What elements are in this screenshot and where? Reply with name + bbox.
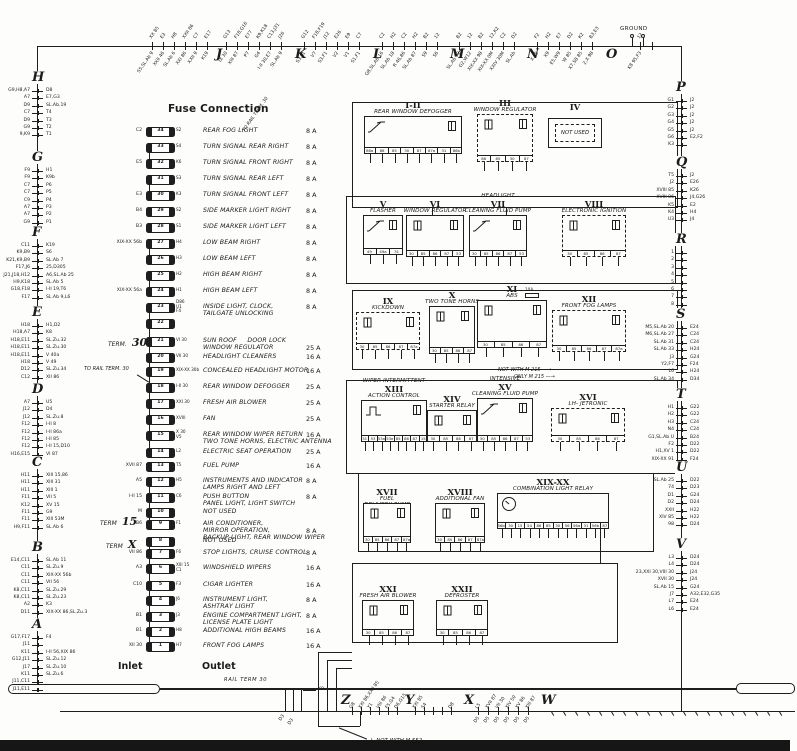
fuse-number: 33 xyxy=(152,144,169,152)
relay-pin-row: 3085868787a xyxy=(363,536,411,543)
fuse-number: 29 xyxy=(152,208,169,216)
fuse-left-tag: C2 xyxy=(112,128,142,133)
top-rail-tick xyxy=(304,42,305,50)
fuse-number: 16 xyxy=(152,416,169,424)
fuse-label: PUSH BUTTON xyxy=(203,493,249,500)
top-rail-label-above: G13 xyxy=(223,29,232,40)
fuse-left-tag: XVII 87 xyxy=(112,463,142,468)
fuse-right-tag: F6 xyxy=(176,549,181,554)
fuse-label: NOT USED xyxy=(203,508,237,515)
relay-pin-stub xyxy=(382,442,383,451)
fuse-amps: 16 A xyxy=(306,581,321,589)
rail-tick-pin xyxy=(681,356,683,360)
fuse-element: 34 xyxy=(146,127,175,137)
rail-tick-right-label: C24 xyxy=(690,332,699,337)
rail-tick-pin xyxy=(681,428,683,432)
fuse-amps: 8 A xyxy=(306,303,316,311)
fuse-label: HIGH BEAM RIGHT xyxy=(203,271,262,278)
rail-tick-right-label: C24 xyxy=(690,427,699,432)
relay-pin-stub xyxy=(375,350,376,359)
rail-tick-right-label: T4 xyxy=(46,110,52,115)
fuse-right-tag: F4 xyxy=(176,308,181,313)
right-rail-letter: U xyxy=(675,461,688,474)
fuse-number: 4 xyxy=(152,597,169,605)
rail-tick-pin xyxy=(681,196,683,200)
rail-tick-pin xyxy=(37,504,39,508)
relay-inner-component xyxy=(519,403,527,413)
fuse-label: INSIDE LIGHT, CLOCK, xyxy=(203,303,273,310)
relay-inner-component xyxy=(513,220,521,230)
relay-pin-stub xyxy=(398,442,399,451)
fuse-end-cap xyxy=(169,538,174,546)
fuse-left-tag: B4 xyxy=(112,208,142,213)
relay-pin-stub xyxy=(460,543,461,552)
rail-tick-pin xyxy=(681,571,683,575)
top-rail-label-below: K19 xyxy=(201,51,210,61)
rail-tick-right-label: P1 xyxy=(46,220,52,225)
relay-pin-stub xyxy=(444,154,445,163)
rail-tick-right-label: G9 xyxy=(46,510,52,515)
relay-pin-stub xyxy=(486,257,487,266)
relay-pin-stub xyxy=(369,636,370,645)
right-rail-letter: R xyxy=(675,233,688,246)
fuse-left-tag: M xyxy=(112,509,142,514)
relay-pin-stub xyxy=(443,636,444,645)
fuse-end-cap xyxy=(169,320,174,328)
outlet-label: Outlet xyxy=(202,661,236,672)
relay-inner-component xyxy=(612,220,620,230)
relay-pin-stub xyxy=(475,257,476,266)
relay-pin-stub xyxy=(390,442,391,451)
rail-tick-left-label: Y2,F7 xyxy=(619,362,674,367)
relay-pin-stub xyxy=(494,442,495,451)
fuse-right-tag: C1 xyxy=(176,567,182,572)
fuse-right-tag: VI 30 xyxy=(176,337,187,342)
rail-tick-left-label: H16,E15 xyxy=(0,452,30,457)
rail-tick-right-label: J2 xyxy=(690,98,694,103)
relay-pin-stub xyxy=(469,636,470,645)
relay-pin-stub xyxy=(458,442,459,451)
rail-tick-right-label: P2 xyxy=(46,212,52,217)
fuse-element: 27 xyxy=(146,239,175,249)
rail-tick-pin xyxy=(37,438,39,442)
fuse-amps: 8 A xyxy=(306,493,316,501)
top-rail-tick xyxy=(337,42,338,50)
fuse-left-tag: XII 30 xyxy=(112,643,142,648)
rail-tick-left-label: J17 xyxy=(0,665,30,670)
relay-inner-wire xyxy=(474,508,475,518)
bottom-rail-letter: X xyxy=(463,694,475,707)
rail-tick-pin xyxy=(681,251,683,255)
relay-pin-row: 3085868753 xyxy=(406,250,464,257)
top-rail-tick xyxy=(174,42,175,50)
rail-tick-left-label: L7 xyxy=(619,599,674,604)
wire-d3-1 xyxy=(285,688,286,711)
fuse-number: 10 xyxy=(152,509,169,517)
rail-tick-pin xyxy=(681,509,683,513)
top-rail-label-above: E3 xyxy=(160,32,167,40)
relay-inner-wire xyxy=(615,220,616,230)
relay-pin-stub xyxy=(447,257,448,266)
rail-tick-left-label: F11 xyxy=(0,510,30,515)
rail-tick-left-label: H18 xyxy=(0,323,30,328)
top-rail-label-below: S3,F1 xyxy=(318,51,329,64)
rail-tick-left-label: XXII xyxy=(619,508,674,513)
rail-tick-pin xyxy=(681,406,683,410)
relay-pin-stub xyxy=(530,529,531,538)
rail-tick-left-label: XVII 30 xyxy=(619,577,674,582)
relay-pin-stub xyxy=(498,257,499,266)
rail-tick-left-label: D1 xyxy=(619,493,674,498)
rail-tick-right-label: T3 xyxy=(46,118,52,123)
relay-title: IV xyxy=(548,103,602,113)
rail-tick-left-label: 3 xyxy=(619,265,674,270)
top-rail-tick xyxy=(426,42,427,50)
relay-pin-stub xyxy=(520,529,521,538)
relay-pin-row: 30858687 xyxy=(551,435,625,442)
rail-tick-pin xyxy=(681,413,683,417)
wire xyxy=(600,529,601,563)
relay-inner-wire xyxy=(453,220,454,230)
rail-tick-left-label: SL.Ab 25 xyxy=(619,478,674,483)
rail-tick-pin xyxy=(37,489,39,493)
relay-inner-component xyxy=(450,220,458,230)
rail-tick-left-label: E14,C11 xyxy=(0,558,30,563)
fuse-element: 33 xyxy=(146,143,175,153)
fuse-end-cap xyxy=(169,449,174,457)
top-rail-tick xyxy=(537,42,538,50)
top-rail-label-above: K2 xyxy=(578,32,586,40)
rail-tick-pin xyxy=(37,673,39,677)
rail-tick-pin xyxy=(681,129,683,133)
relay-pin-stub xyxy=(521,348,522,357)
rail-tick-left-label: XVIII 86 xyxy=(619,195,674,200)
top-rail-label-below: G4 xyxy=(254,51,262,59)
top-rail-label-above: J26 xyxy=(278,31,286,40)
rail-tick-pin xyxy=(681,578,683,582)
rail-tick-left-label: G6 xyxy=(619,135,674,140)
rail-tick-pin xyxy=(37,331,39,335)
rail-tick-pin xyxy=(37,251,39,255)
rail-tick-left-label: K21,K9,B9 xyxy=(0,258,30,263)
rail-tick-left-label: F9 xyxy=(0,175,30,180)
fuse-label: LICENSE PLATE LIGHT xyxy=(203,619,273,626)
top-rail-label-above: C7 xyxy=(356,32,364,40)
rail-tick-pin xyxy=(681,288,683,292)
rail-tick-right-label: XIII 1 xyxy=(46,488,58,493)
rail-tick-left-label: C7 xyxy=(0,190,30,195)
fuse-amps: 16 A xyxy=(306,564,321,572)
right-rail-letter: P xyxy=(675,81,687,94)
fuse-number: 19 xyxy=(152,368,169,376)
rail-tick-right-label: I-II 86a xyxy=(46,430,62,435)
rail-tick-pin xyxy=(681,121,683,125)
rail-tick-pin xyxy=(681,99,683,103)
top-rail-tick xyxy=(259,42,260,50)
rail-tick-pin xyxy=(37,199,39,203)
fuse-end-cap xyxy=(169,494,174,502)
rail-tick-left-label: K11 xyxy=(0,650,30,655)
top-rail-label-above: J12 xyxy=(323,31,331,40)
rail-tick-left-label: M5,SL.Ab 20 xyxy=(619,325,674,330)
top-rail-label-above: E17 xyxy=(204,30,213,40)
left-rail-letter: F xyxy=(31,226,42,239)
fuse-amps: 8 A xyxy=(306,159,316,167)
relay-inner-component xyxy=(406,317,414,327)
fuse-row: 23D86U1F4INSIDE LIGHT, CLOCK,TAILGATE UN… xyxy=(0,302,340,316)
rail-tick-right-label: VII 56 xyxy=(46,580,59,585)
relay-inner-wire xyxy=(477,605,478,615)
rail-tick-right-label: D4 xyxy=(46,407,52,412)
rail-tick-left-label: J11 xyxy=(0,642,30,647)
rail-tick-right-label: D22 xyxy=(690,449,699,454)
relay-not-used-label: NOT USED xyxy=(556,130,594,136)
ground-wire-left xyxy=(632,38,633,46)
rail-tick-pin xyxy=(37,133,39,137)
top-rail-tick xyxy=(652,42,653,50)
relay-name: LH- JETRONIC xyxy=(535,401,641,407)
fuse-right-tag: XVIII xyxy=(176,415,185,420)
rail-tick-left-label: D9 xyxy=(0,103,30,108)
fuse-end-cap xyxy=(169,288,174,296)
bottom-rail-letter: W xyxy=(540,694,557,707)
rail-tick-left-label: L3 xyxy=(619,555,674,560)
top-rail-label-below: P7 xyxy=(244,51,251,59)
relay-pin-stub xyxy=(423,442,424,451)
relay-name: REAR WINDOW DEFOGGER xyxy=(348,109,478,115)
rail-tick-left-label: T5 xyxy=(619,173,674,178)
top-rail-label-below: S9 xyxy=(422,51,429,59)
rail-tick-left-label: F17,J6 xyxy=(0,265,30,270)
rail-tick-right-label: U5 xyxy=(46,400,52,405)
fuse-end-cap xyxy=(169,463,174,471)
left-rail-letter: H xyxy=(31,71,45,84)
rail-tick-right-label: SL.Zu.29 xyxy=(46,588,66,593)
rail-tick-right-label: D24 xyxy=(690,500,699,505)
rail-tick-pin xyxy=(681,189,683,193)
rail-tick-right-label: E24 xyxy=(690,607,699,612)
rail-tick-left-label: H9,F11 xyxy=(0,525,30,530)
rail-tick-pin xyxy=(681,258,683,262)
rail-tick-pin xyxy=(681,494,683,498)
relay-pin-stub xyxy=(412,257,413,266)
top-rail-label-below: S1,F1 xyxy=(351,51,362,64)
fuse-label: INSTRUMENTS AND INDICATOR xyxy=(203,477,303,484)
rail-tick-left-label: H18,E11 xyxy=(0,353,30,358)
fuse-element: 11 xyxy=(146,493,175,503)
relay-pin-stub xyxy=(450,543,451,552)
rail-tick-right-label: SL.Ab 9,L6 xyxy=(46,295,70,300)
rail-tick-pin xyxy=(37,603,39,607)
fuse-label: TURN SIGNAL REAR RIGHT xyxy=(203,143,288,150)
rail-tick-left-label: C11 xyxy=(0,573,30,578)
rail-tick-left-label: A7 xyxy=(0,95,30,100)
rail-tick-pin xyxy=(681,326,683,330)
relay-pin-row: 3085868753 xyxy=(469,250,527,257)
rail-tick-pin xyxy=(681,486,683,490)
fuse-end-cap xyxy=(169,613,174,621)
fuse-label: TURN SIGNAL REAR LEFT xyxy=(203,175,284,182)
fuse-number: 18 xyxy=(152,384,169,392)
rail-tick-pin xyxy=(37,281,39,285)
rail-tick-right-label: V 49 xyxy=(46,360,56,365)
top-rail-label-below: K8 95,F3 xyxy=(627,51,643,70)
rail-tick-left-label: J21,J18,H12 xyxy=(0,273,30,278)
relay-pin-stub xyxy=(510,257,511,266)
fuse-right-tag: F1 xyxy=(176,520,181,525)
top-rail-tick xyxy=(404,42,405,50)
fuse-right-tag: K6 xyxy=(176,159,181,164)
rail-tick-pin xyxy=(37,596,39,600)
ground-wire-right xyxy=(643,38,644,46)
rail-tick-pin xyxy=(37,481,39,485)
relay-inner-wire xyxy=(409,317,410,327)
right-rail-letter: S xyxy=(675,308,686,321)
fuse-end-cap xyxy=(169,192,174,200)
fuse-left-tag: XIX-XX 56b xyxy=(112,240,142,245)
fuse-label: WINDSHIELD WIPERS xyxy=(203,564,271,571)
rail-tick-right-label: I-II 19,T6 xyxy=(46,287,66,292)
fuse-label: SIDE MARKER LIGHT RIGHT xyxy=(203,207,291,214)
relay-pin-stub xyxy=(516,442,517,451)
fuse-left-tag: A3 xyxy=(112,565,142,570)
relay-inner-wire xyxy=(403,605,404,615)
rail-tick-right-label: T1 xyxy=(46,132,52,137)
rail-tick-pin xyxy=(681,114,683,118)
top-rail-tick xyxy=(415,42,416,50)
fuse-left-tag: E3 xyxy=(112,192,142,197)
wire xyxy=(336,668,352,669)
relay-inner-component xyxy=(389,220,397,230)
rail-tick-left-label: 23,XXI 30,VIII 30 xyxy=(619,570,674,575)
rail-tick-left-label: SL.Ab 33 xyxy=(619,347,674,352)
rail-tick-pin xyxy=(681,143,683,147)
fuse-number: 13 xyxy=(152,463,169,471)
rail-tick-pin xyxy=(681,218,683,222)
rail-tick-pin xyxy=(37,680,39,684)
fuse-left-tag: B3 xyxy=(112,224,142,229)
rail-tick-right-label: G22 xyxy=(690,405,699,410)
rail-tick-left-label: 74 xyxy=(619,485,674,490)
fuse-left-tag: I-II 15 xyxy=(112,494,142,499)
relay-pin-stub xyxy=(548,529,549,538)
fuse-right-tag: H1 xyxy=(176,287,182,292)
rail-tick-pin xyxy=(37,176,39,180)
relay-pre-name: INTENSIVE xyxy=(463,376,547,382)
rail-tick-left-label: C9 xyxy=(0,198,30,203)
rail-tick-pin xyxy=(37,651,39,655)
top-rail-tick xyxy=(185,42,186,50)
rail-tick-right-label: I-II 8 xyxy=(46,422,56,427)
rail-tick-right-label: T2 xyxy=(46,125,52,130)
fuse-label: TAILGATE UNLOCKING xyxy=(203,310,274,317)
fuse-end-cap xyxy=(169,432,174,440)
fuse-label: FRONT FOG LAMPS xyxy=(203,642,264,649)
rail-tick-right-label: SL.Zu.10 xyxy=(46,665,66,670)
rail-tick-left-label: F9 xyxy=(0,168,30,173)
fuse-right-tag: T5 xyxy=(176,462,181,467)
wire xyxy=(327,660,352,661)
fuse-end-cap xyxy=(169,628,174,636)
fuse-number: 28 xyxy=(152,224,169,232)
relay-pin-stub xyxy=(539,529,540,538)
rail-tick-left-label: J11,C11 xyxy=(0,679,30,684)
fuse-end-cap xyxy=(169,416,174,424)
rail-tick-right-label: XV 15 xyxy=(46,503,60,508)
fuse-number: 3 xyxy=(152,613,169,621)
rail-tick-left-label: F12 xyxy=(0,444,30,449)
fuse-end-cap xyxy=(169,368,174,376)
top-rail-label-above: B2 xyxy=(456,32,464,40)
fuse-right-tag: H4 xyxy=(176,239,182,244)
top-rail-label-above: 12 xyxy=(467,32,474,40)
rail-tick-left-label: U3 xyxy=(619,217,674,222)
m552-bracket-left xyxy=(318,712,319,726)
relay-inner-wire xyxy=(522,403,523,413)
rail-tick-pin xyxy=(681,370,683,374)
relay-inner-component xyxy=(471,508,479,518)
fuse-label: SUN ROOF DOOR LOCK xyxy=(203,337,286,344)
right-rail-bar xyxy=(736,683,795,694)
relay-pin-row: 30858687 xyxy=(429,347,475,354)
rail-tick-right-label: D22 xyxy=(690,478,699,483)
fuse-amps: 8 A xyxy=(306,127,316,135)
rail-tick-right-label: VII 5 xyxy=(46,495,56,500)
relay-fuse xyxy=(525,293,539,298)
fuse-right-tag: H7 xyxy=(176,642,182,647)
rail-tick-pin xyxy=(681,586,683,590)
fuse-label: NOT USED xyxy=(203,537,237,544)
fuse-number: 32 xyxy=(152,160,169,168)
fuse-element: 18 xyxy=(146,383,175,393)
top-rail-tick xyxy=(270,42,271,50)
fuse-right-tag: I-II 30 xyxy=(176,383,188,388)
rail-tick-pin xyxy=(37,244,39,248)
top-rail-label-below: V7 xyxy=(311,51,319,59)
rail-tick-left-label: C12 xyxy=(0,375,30,380)
rail-tick-left-label: G3 xyxy=(619,113,674,118)
fuse-element: 19 xyxy=(146,367,175,377)
rail-tick-pin xyxy=(681,266,683,270)
top-rail-label-above: C2 xyxy=(401,32,409,40)
rail-tick-pin xyxy=(681,204,683,208)
relay-pin-stub xyxy=(486,348,487,357)
rail-tick-right-label: G22 xyxy=(690,412,699,417)
fuse-left-tag: XIX-XX 56a xyxy=(112,288,142,293)
rail-tick-right-label: F4 xyxy=(46,635,52,640)
relay-pin-stub xyxy=(414,350,415,359)
bottom-rail-line xyxy=(60,711,795,712)
fuse-amps: 16 A xyxy=(306,367,321,375)
rail-tick-left-label: 98 xyxy=(619,522,674,527)
rail-tick-left-label: G9 xyxy=(0,220,30,225)
relay-inner-component xyxy=(448,121,456,131)
fuse-label: ASHTRAY LIGHT xyxy=(203,603,254,610)
relay-pin-stub xyxy=(456,154,457,163)
top-rail-tick xyxy=(492,42,493,50)
relay-inner-wire xyxy=(451,121,452,131)
relay-pin-stub xyxy=(383,255,384,264)
rail-tick-pin xyxy=(681,273,683,277)
rail-tick-right-label: D24 xyxy=(690,555,699,560)
relay-pin-stub xyxy=(396,255,397,264)
fuse-right-tag: H8 xyxy=(176,627,182,632)
rail-tick-pin xyxy=(37,518,39,522)
fuse-element: 24 xyxy=(146,287,175,297)
rail-tick-left-label: H11 xyxy=(0,488,30,493)
top-rail-tick xyxy=(481,42,482,50)
rail-tick-left-label: K5 xyxy=(619,203,674,208)
